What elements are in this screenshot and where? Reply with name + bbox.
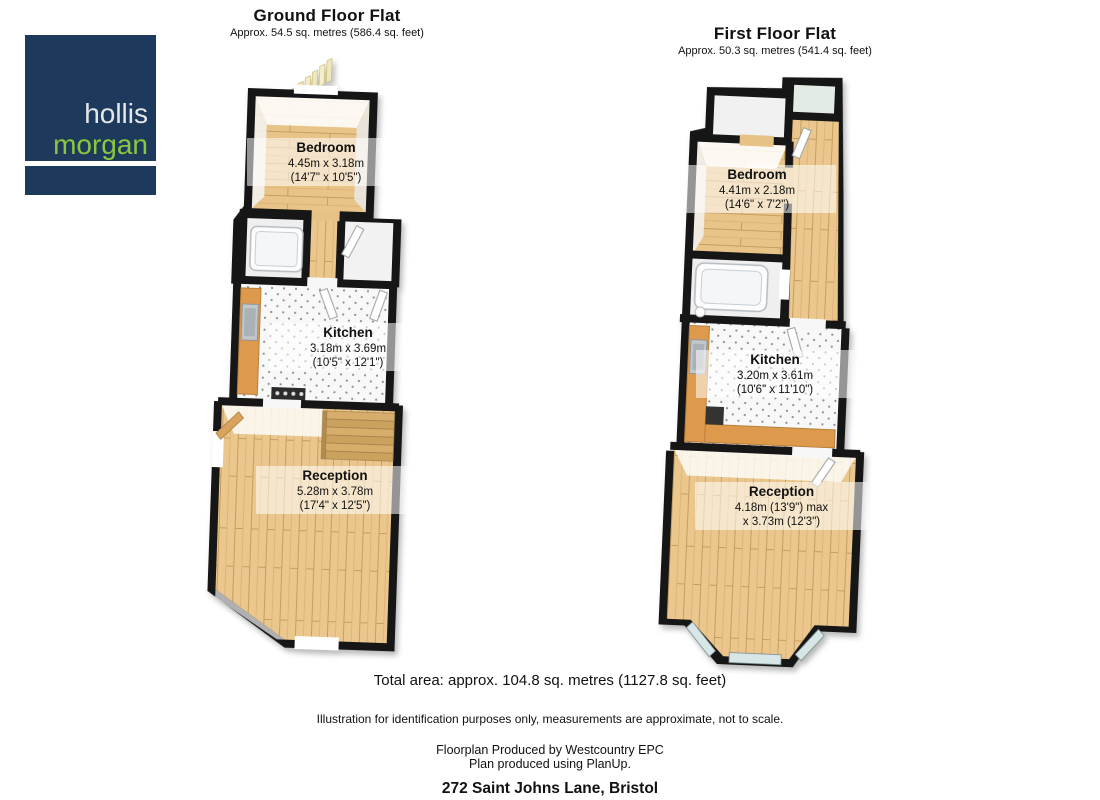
ff-basin [695,307,705,317]
floorplan-page: Ground Floor Flat Approx. 54.5 sq. metre… [0,0,1100,800]
software-text: Plan produced using PlanUp. [0,757,1100,771]
gf-reception-label: Reception 5.28m x 3.78m (17'4" x 12'5") [256,466,414,514]
gf-bedroom-wall-band [255,96,370,128]
gf-bathtub [250,226,304,272]
ff-landing-bedroom-door-gap [739,134,773,146]
produced-by-text: Floorplan Produced by Westcountry EPC [0,743,1100,757]
gf-kitchen-sink [241,304,258,341]
gf-stove [271,387,305,400]
gf-bedroom-door-gap [311,210,339,221]
gf-bedroom-label: Bedroom 4.45m x 3.18m (14'7" x 10'5") [247,138,405,186]
ff-bedroom-label: Bedroom 4.41m x 2.18m (14'6" x 7'2") [678,165,836,213]
total-area-text: Total area: approx. 104.8 sq. metres (11… [0,672,1100,689]
gf-bedroom-window [294,85,338,96]
ff-stove [705,406,724,425]
ff-landing-floor [713,95,790,141]
ff-reception-label: Reception 4.18m (13'9") max x 3.73m (12'… [695,482,868,530]
ff-bathroom-door-gap [779,269,790,299]
gf-hall-kitchen-door-gap [307,277,337,289]
ff-kitchen-label: Kitchen 3.20m x 3.61m (10'6" x 11'10") [696,350,854,398]
disclaimer-text: Illustration for identification purposes… [0,712,1100,726]
gf-kitchen-label: Kitchen 3.18m x 3.69m (10'5" x 12'1") [269,323,427,371]
gf-staircase [321,411,395,461]
gf-front-door-gap [294,636,338,651]
address-text: 272 Saint Johns Lane, Bristol [0,780,1100,798]
